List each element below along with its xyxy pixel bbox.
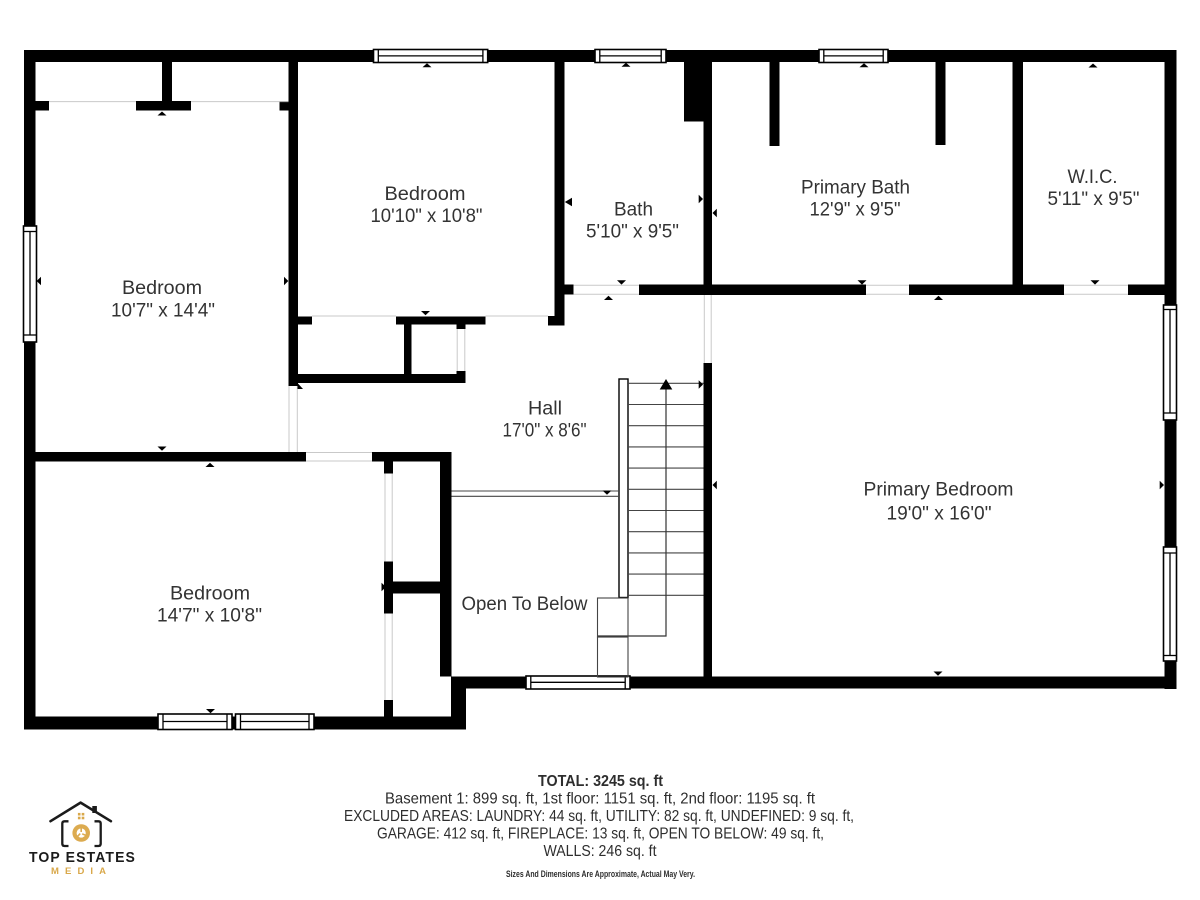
svg-text:12'9" x 9'5": 12'9" x 9'5" <box>810 200 901 221</box>
svg-text:Sizes And Dimensions Are Appro: Sizes And Dimensions Are Approximate, Ac… <box>506 869 695 880</box>
svg-text:Bath: Bath <box>614 200 653 221</box>
svg-text:17'0" x 8'6": 17'0" x 8'6" <box>503 421 587 442</box>
svg-text:10'10" x 10'8": 10'10" x 10'8" <box>371 206 483 227</box>
svg-text:Hall: Hall <box>528 399 562 420</box>
svg-text:Bedroom: Bedroom <box>122 278 202 299</box>
svg-text:GARAGE: 412 sq. ft, FIREPLACE:: GARAGE: 412 sq. ft, FIREPLACE: 13 sq. ft… <box>377 826 824 843</box>
svg-text:Bedroom: Bedroom <box>385 184 466 205</box>
svg-text:Bedroom: Bedroom <box>170 584 250 605</box>
svg-text:5'11" x 9'5": 5'11" x 9'5" <box>1048 189 1140 210</box>
svg-text:10'7" x 14'4": 10'7" x 14'4" <box>111 301 215 322</box>
svg-text:MEDIA: MEDIA <box>51 866 111 877</box>
svg-text:19'0" x 16'0": 19'0" x 16'0" <box>887 504 992 525</box>
svg-text:EXCLUDED AREAS: LAUNDRY: 44 sq: EXCLUDED AREAS: LAUNDRY: 44 sq. ft, UTIL… <box>344 808 854 825</box>
svg-text:Primary Bath: Primary Bath <box>801 178 910 199</box>
svg-text:TOTAL: 3245 sq. ft: TOTAL: 3245 sq. ft <box>538 773 664 790</box>
svg-text:5'10" x 9'5": 5'10" x 9'5" <box>586 222 679 243</box>
svg-text:Primary Bedroom: Primary Bedroom <box>864 480 1014 501</box>
svg-text:W.I.C.: W.I.C. <box>1068 167 1118 188</box>
svg-text:14'7" x 10'8": 14'7" x 10'8" <box>157 606 262 627</box>
svg-text:Basement 1: 899 sq. ft, 1st fl: Basement 1: 899 sq. ft, 1st floor: 1151 … <box>385 791 816 808</box>
svg-text:Open To Below: Open To Below <box>462 594 588 615</box>
svg-text:WALLS: 246 sq. ft: WALLS: 246 sq. ft <box>544 843 657 860</box>
svg-text:TOP ESTATES: TOP ESTATES <box>29 849 136 866</box>
